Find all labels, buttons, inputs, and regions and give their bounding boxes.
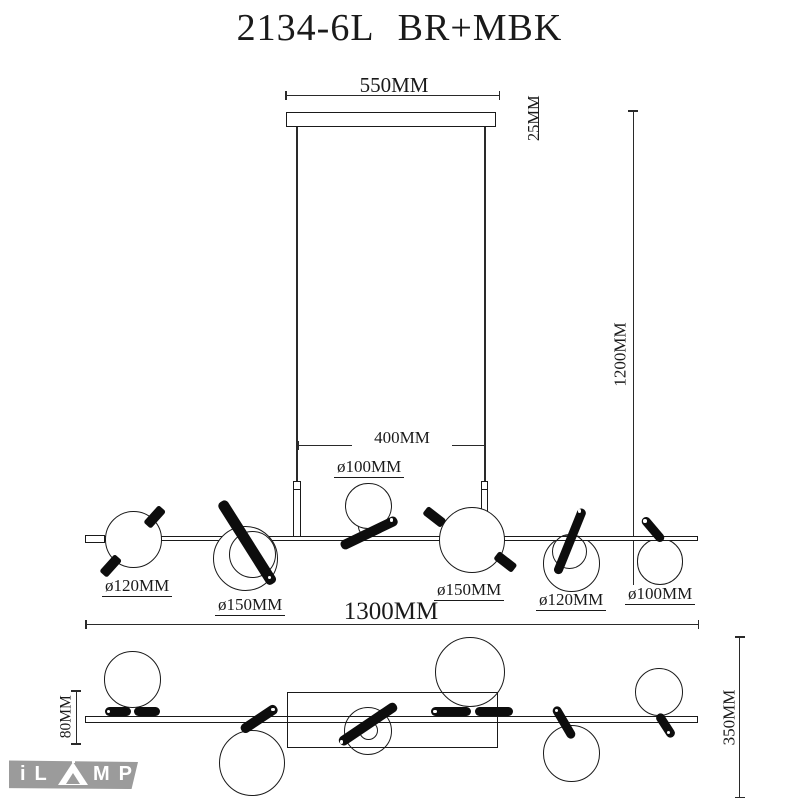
- ceiling-canopy: [286, 112, 496, 127]
- dim-tick: [698, 620, 699, 629]
- wire-socket-left: [293, 481, 301, 537]
- dim-line-350: [739, 637, 740, 798]
- label-shade-5-diameter: ø120MM: [536, 591, 606, 611]
- logo-text-left: iL: [20, 764, 56, 784]
- dim-line-1200: [633, 111, 634, 585]
- rod-highlight: [271, 708, 275, 712]
- front-shade-4-stub-bottom: [494, 551, 518, 573]
- dim-tick: [735, 797, 745, 798]
- rod-highlight: [390, 518, 394, 522]
- dim-tick: [484, 441, 485, 450]
- front-shade-4-stub-top: [423, 506, 447, 528]
- dim-tick: [628, 110, 638, 111]
- label-shade-6-diameter: ø100MM: [625, 585, 695, 605]
- front-bar-end-cap: [85, 535, 105, 543]
- dim-tick: [85, 620, 86, 629]
- dim-tick: [499, 91, 500, 100]
- plan-shade-d-holder-right: [475, 707, 513, 717]
- plan-shade-d: [435, 637, 505, 707]
- dim-tick: [285, 91, 286, 100]
- dim-total-length: 1300MM: [341, 599, 441, 624]
- dim-bar-offset: 80MM: [58, 687, 74, 747]
- dim-line-80: [76, 691, 77, 744]
- plan-shade-b: [219, 730, 285, 796]
- logo-text-right: MP: [93, 764, 141, 784]
- front-bar: [85, 536, 698, 541]
- dim-canopy-width: 550MM: [334, 75, 454, 96]
- plan-bar: [85, 716, 698, 723]
- label-shade-1-diameter: ø120MM: [102, 577, 172, 597]
- dim-line-550: [286, 95, 499, 96]
- rod-highlight: [340, 740, 344, 744]
- dim-drop-height: 1200MM: [612, 310, 629, 400]
- technical-drawing: 2134-6L BR+MBK 550MM 25MM 1200MM 400MM: [0, 0, 799, 800]
- label-shade-2-diameter: ø150MM: [215, 596, 285, 616]
- plan-shade-f: [635, 668, 683, 716]
- plan-shade-a-holder-right: [134, 707, 160, 717]
- label-shade-top-diameter: ø100MM: [334, 458, 404, 478]
- dim-tick: [297, 441, 298, 450]
- brand-logo: iL MP: [9, 755, 138, 790]
- page-title: 2134-6L BR+MBK: [0, 6, 799, 50]
- dim-canopy-thickness: 25MM: [526, 88, 543, 148]
- rod-highlight: [643, 519, 647, 523]
- dim-cord-spacing: 400MM: [352, 429, 452, 446]
- plan-shade-a: [104, 651, 161, 708]
- rod-highlight: [433, 710, 437, 714]
- front-shade-6: [637, 538, 684, 585]
- dim-tick: [735, 636, 745, 637]
- dim-line-1300: [86, 624, 699, 625]
- hanging-wire-left: [296, 127, 298, 481]
- logo-lampshade-inner: [66, 773, 80, 784]
- label-shade-4-diameter: ø150MM: [434, 581, 504, 601]
- plan-shade-d-holder-left: [431, 707, 471, 717]
- hanging-wire-right: [484, 127, 486, 481]
- dim-depth: 350MM: [720, 683, 737, 753]
- front-shade-1-stub-bottom: [99, 554, 121, 577]
- front-shade-4: [439, 507, 505, 573]
